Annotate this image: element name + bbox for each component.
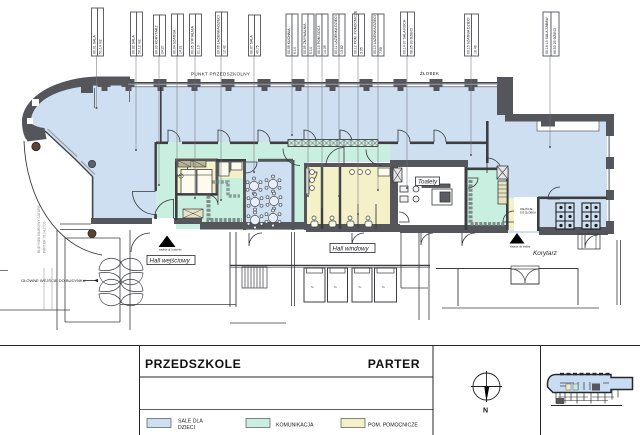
svg-text:00.06 LAZIENKA DZIECI: 00.06 LAZIENKA DZIECI <box>217 15 221 54</box>
svg-text:00.16 13 SALA ZABAW: 00.16 13 SALA ZABAW <box>545 17 549 54</box>
svg-text:DZIECI: DZIECI <box>178 425 195 431</box>
svg-text:POM. POMOCNICZE: POM. POMOCNICZE <box>368 423 418 429</box>
svg-text:Hall windowy: Hall windowy <box>333 246 370 253</box>
svg-text:wejście do żłobka: wejście do żłobka <box>510 245 531 249</box>
svg-text:00.14 07 SALA RUCH: 00.14 07 SALA RUCH <box>403 19 407 54</box>
svg-text:00.12 POM. POMOCNICZE: 00.12 POM. POMOCNICZE <box>354 10 358 54</box>
svg-text:PRZEDSZKOLE: PRZEDSZKOLE <box>145 357 241 371</box>
svg-text:00.08 KUCHNIA: 00.08 KUCHNIA <box>287 28 291 54</box>
svg-text:50.12 m2: 50.12 m2 <box>138 39 142 54</box>
svg-text:ŻŁOBEK: ŻŁOBEK <box>420 71 439 76</box>
svg-text:68.25 20 DZIECI: 68.25 20 DZIECI <box>410 28 414 54</box>
svg-text:Toalety: Toalety <box>418 180 438 186</box>
svg-text:PARTER 05.04.2005: PARTER 05.04.2005 <box>43 222 47 253</box>
svg-text:00.05 SYPIALNIA: 00.05 SYPIALNIA <box>191 26 195 54</box>
svg-text:14.21: 14.21 <box>179 45 183 54</box>
svg-text:3.35: 3.35 <box>360 47 364 54</box>
svg-text:00.10 POM.SOCJ.: 00.10 POM.SOCJ. <box>317 25 321 54</box>
svg-text:00.11 LAZIENKA DZIECI: 00.11 LAZIENKA DZIECI <box>334 15 338 54</box>
svg-text:wejście gł. budynku: wejście gł. budynku <box>159 248 182 252</box>
svg-text:00.04 SZATNIA: 00.04 SZATNIA <box>173 29 177 54</box>
svg-text:00.01 SALA: 00.01 SALA <box>93 35 97 54</box>
svg-text:SALE DLA: SALE DLA <box>178 419 203 425</box>
svg-text:66.53 25 DZIECI: 66.53 25 DZIECI <box>553 28 557 54</box>
svg-text:PARTER: PARTER <box>368 357 420 371</box>
svg-text:5.14: 5.14 <box>309 47 313 54</box>
svg-text:24.27: 24.27 <box>161 45 165 54</box>
svg-text:7.98: 7.98 <box>379 47 383 54</box>
svg-text:N: N <box>483 408 488 415</box>
svg-text:00.15 SZATNIA DZIECI: 00.15 SZATNIA DZIECI <box>467 17 471 54</box>
svg-text:KOMUNIKACJA: KOMUNIKACJA <box>276 423 314 429</box>
svg-text:51.14 m2: 51.14 m2 <box>99 39 103 54</box>
svg-text:BUDYNEK BIUROWY SATURN: BUDYNEK BIUROWY SATURN <box>37 204 41 253</box>
svg-text:21.10: 21.10 <box>197 45 201 54</box>
svg-text:DO ŻŁOBKA: DO ŻŁOBKA <box>520 210 536 215</box>
svg-text:Korytarz: Korytarz <box>533 250 558 257</box>
svg-text:GŁÓWNE WEJŚCIE DO BUDYNKU: GŁÓWNE WEJŚCIE DO BUDYNKU <box>21 278 86 283</box>
svg-text:13.82: 13.82 <box>340 45 344 54</box>
svg-text:00.07 SALA: 00.07 SALA <box>250 35 254 54</box>
svg-text:16.40: 16.40 <box>474 45 478 54</box>
svg-text:Hall wejściowy: Hall wejściowy <box>150 258 191 265</box>
svg-text:49.75: 49.75 <box>256 45 260 54</box>
svg-text:00.09 ZMYWALNIA: 00.09 ZMYWALNIA <box>303 23 307 54</box>
svg-text:00.13 LAZIENKA DZIECI: 00.13 LAZIENKA DZIECI <box>373 15 377 54</box>
svg-text:6.14: 6.14 <box>293 47 297 54</box>
svg-text:00.02 SALA: 00.02 SALA <box>132 35 136 54</box>
svg-text:PUNKT PRZEDSZKOLNY: PUNKT PRZEDSZKOLNY <box>191 72 250 77</box>
svg-text:14.39: 14.39 <box>323 45 327 54</box>
svg-text:00.03 KORYTARZ: 00.03 KORYTARZ <box>155 25 159 54</box>
svg-text:12.42: 12.42 <box>223 45 227 54</box>
